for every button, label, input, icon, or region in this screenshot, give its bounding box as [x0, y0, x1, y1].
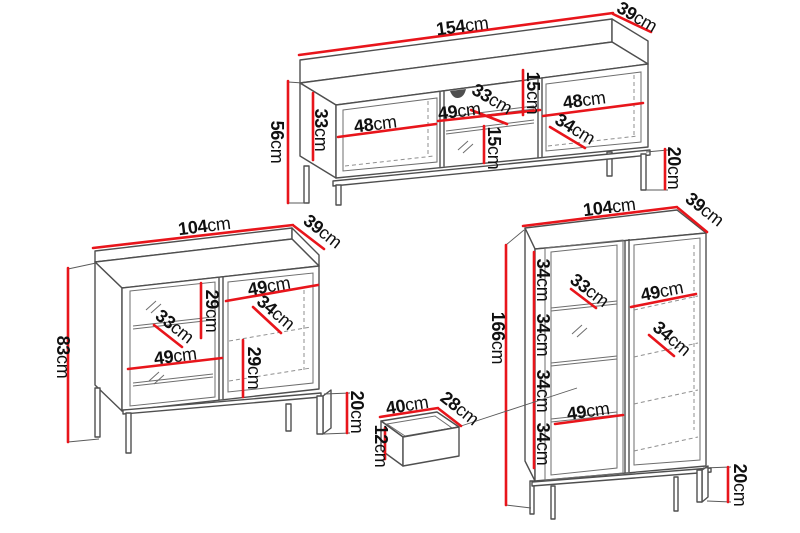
cabinet-shelf-4-label: 34cm — [533, 423, 553, 466]
furniture-dimension-diagram: 154cm 39cm 56cm 33cm 48cm 49cm 33cm 15cm… — [0, 0, 800, 533]
cabinet-leg-back-right — [674, 477, 678, 511]
sideboard-lower-shelf-label: 29cm — [244, 347, 264, 390]
sideboard-width-label: 104cm — [177, 213, 232, 239]
display-cabinet-drawing: 104cm 39cm 166cm 34cm 34cm 34cm 34cm 33c… — [488, 188, 750, 519]
sideboard-leg-back-left — [95, 388, 100, 437]
cabinet-shelf-2-label: 34cm — [533, 314, 553, 357]
sideboard-upper-shelf-label: 29cm — [202, 290, 222, 333]
cabinet-shelf-1-label: 34cm — [533, 259, 553, 302]
sideboard-leg-front-right — [317, 396, 323, 434]
tv-stand-left-height-label: 33cm — [311, 109, 331, 152]
tv-stand-leg-front-right — [641, 154, 646, 190]
sideboard-drawing: 104cm 39cm 83cm 29cm 33cm 49cm 49cm 34cm… — [53, 210, 367, 453]
drawer-height-label: 12cm — [371, 425, 391, 468]
tv-stand-leg-front-left — [336, 185, 341, 205]
sideboard-leg-label: 20cm — [347, 391, 367, 434]
cabinet-leg-front-right — [697, 470, 702, 502]
tv-stand-leg-back-left — [304, 166, 309, 203]
cabinet-height-label: 166cm — [488, 312, 508, 365]
cabinet-leg-front-left — [551, 486, 555, 519]
tv-stand-height-label: 56cm — [267, 121, 287, 164]
tv-stand-leg-label: 20cm — [664, 147, 684, 190]
tv-stand-drawing: 154cm 39cm 56cm 33cm 48cm 49cm 33cm 15cm… — [267, 0, 684, 205]
sideboard-leg-back-right — [286, 404, 291, 431]
sideboard-leg-front-left — [126, 413, 131, 453]
tv-stand-lower-shelf-label: 15cm — [484, 127, 504, 170]
cabinet-leg-label: 20cm — [730, 464, 750, 507]
cabinet-leg-front-right-side — [702, 466, 708, 502]
tv-stand-width-label: 154cm — [435, 13, 490, 40]
tv-stand-top-shelf-label: 15cm — [523, 72, 543, 115]
sideboard-height-label: 83cm — [53, 336, 73, 379]
diagram-canvas: 154cm 39cm 56cm 33cm 48cm 49cm 33cm 15cm… — [0, 0, 800, 533]
sideboard-leg-front-right-side — [323, 390, 331, 434]
cabinet-shelf-3-label: 34cm — [533, 370, 553, 413]
